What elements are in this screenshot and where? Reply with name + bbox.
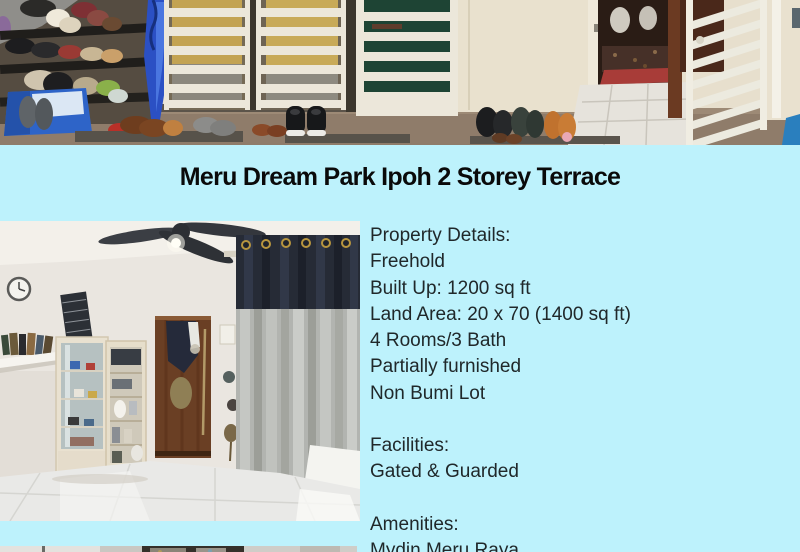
detail-line: Mydin Meru Raya: [370, 538, 790, 552]
living-room-illustration: [0, 221, 360, 521]
wooden-door: [155, 316, 211, 458]
display-cabinet: [56, 337, 108, 479]
wall-clock: [8, 278, 30, 300]
amenities-section: Amenities: Mydin Meru Raya: [370, 512, 790, 552]
curtains: [224, 235, 360, 493]
detail-line: Gated & Guarded: [370, 459, 790, 485]
detail-line: Non Bumi Lot: [370, 381, 790, 407]
facilities-section: Facilities: Gated & Guarded: [370, 433, 790, 486]
detail-line: Built Up: 1200 sq ft: [370, 276, 790, 302]
section-heading: Facilities:: [370, 433, 790, 459]
bottom-photo: [0, 546, 357, 552]
detail-line: 4 Rooms/3 Bath: [370, 328, 790, 354]
section-heading: Amenities:: [370, 512, 790, 538]
detail-line: Partially furnished: [370, 354, 790, 380]
detail-line: Freehold: [370, 249, 790, 275]
house-entrance-illustration: [0, 0, 800, 145]
section-heading: Property Details:: [370, 223, 790, 249]
property-details-text: Property Details: Freehold Built Up: 120…: [370, 223, 790, 552]
grille-window-middle: [256, 0, 346, 110]
property-listing-page: Meru Dream Park Ipoh 2 Storey Terrace: [0, 0, 800, 552]
living-room-photo: [0, 221, 360, 521]
grille-door-green: [356, 0, 458, 116]
house-entrance-photo: [0, 0, 800, 145]
page-title: Meru Dream Park Ipoh 2 Storey Terrace: [0, 163, 800, 192]
property-details-section: Property Details: Freehold Built Up: 120…: [370, 223, 790, 407]
shelf-cabinet: [106, 341, 146, 471]
detail-line: Land Area: 20 x 70 (1400 sq ft): [370, 302, 790, 328]
grille-window-left: [164, 0, 250, 110]
bottom-photo-illustration: [0, 546, 357, 552]
